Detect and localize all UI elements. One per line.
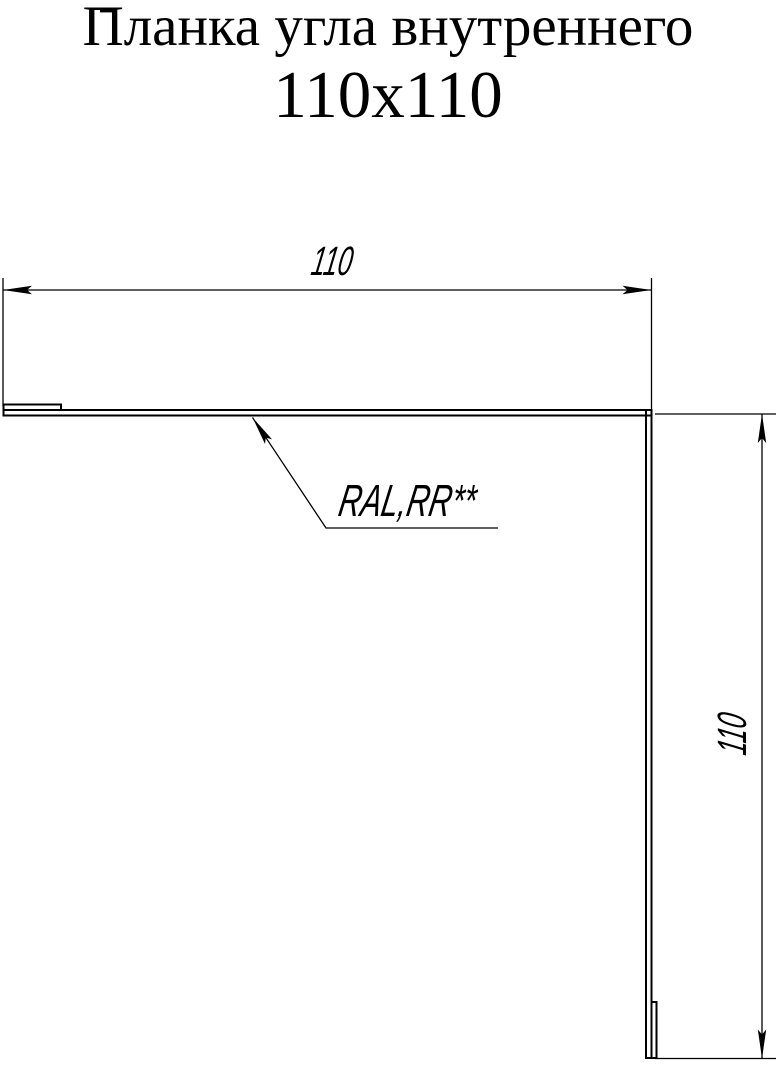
- left-hem-fold: [4, 405, 62, 411]
- material-leader-label: RAL,RR**: [335, 477, 481, 527]
- stray-mark: [100, 10, 112, 12]
- bottom-hem-fold: [652, 1002, 657, 1058]
- top-dimension-value: 110: [308, 239, 356, 284]
- drawing-page: Планка угла внутреннего 110x110 110: [0, 0, 776, 1065]
- material-leader-arrow: [249, 415, 272, 444]
- right-dimension-value: 110: [710, 709, 755, 757]
- horizontal-flange-outline: [4, 410, 652, 416]
- vertical-flange-outline: [646, 410, 652, 1058]
- profile-drawing-canvas: 110 110 RAL,RR**: [0, 0, 776, 1065]
